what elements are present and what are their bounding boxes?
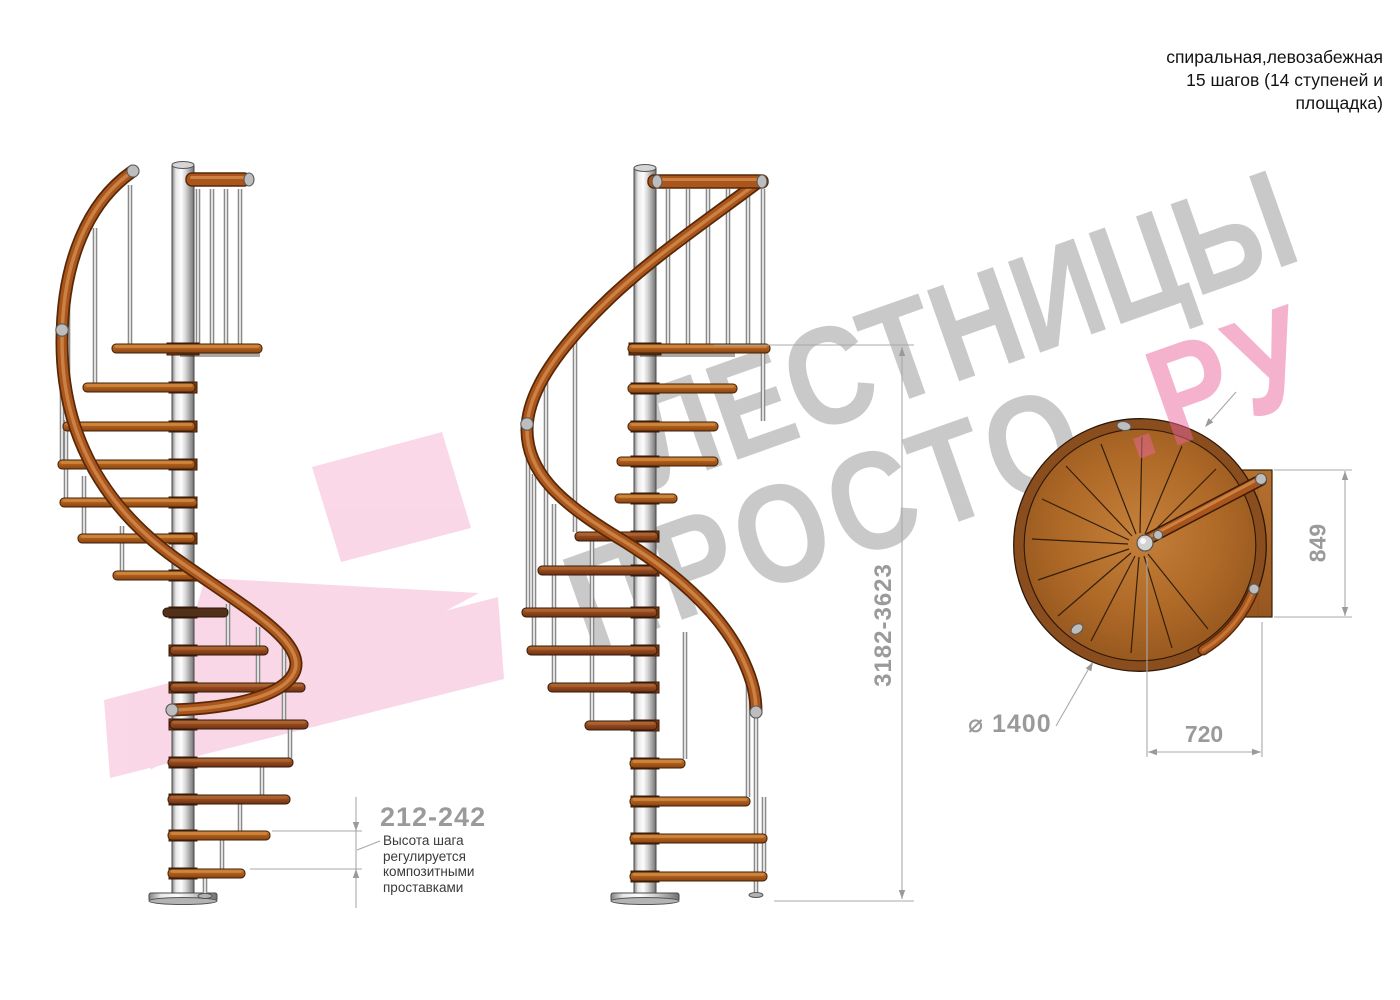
leader-diameter bbox=[1056, 662, 1093, 726]
dimension-landing-depth-value: 849 bbox=[1305, 524, 1332, 562]
step bbox=[63, 421, 197, 432]
step bbox=[628, 383, 737, 394]
step bbox=[538, 565, 659, 576]
title-line-2: 15 шагов (14 ступеней и bbox=[1166, 69, 1383, 92]
step bbox=[168, 794, 290, 805]
step bbox=[628, 421, 718, 432]
step bbox=[163, 607, 228, 618]
step bbox=[168, 757, 293, 768]
platform-handrail bbox=[186, 173, 254, 186]
step bbox=[168, 868, 245, 879]
side-view-left bbox=[56, 162, 308, 905]
step bbox=[615, 493, 677, 504]
step bbox=[527, 645, 659, 656]
title-line-1: спиральная,левозабежная bbox=[1166, 46, 1383, 69]
step bbox=[630, 833, 767, 844]
step bbox=[548, 682, 659, 693]
dimension-step-height-note: Высота шага регулируется композитными пр… bbox=[383, 833, 474, 895]
step bbox=[522, 607, 659, 618]
dimension-diameter-value: ⌀ 1400 bbox=[968, 709, 1052, 739]
pole-hub bbox=[1137, 535, 1153, 551]
step bbox=[83, 382, 197, 393]
dimension-total-height-value: 3182-3623 bbox=[870, 563, 898, 687]
step bbox=[169, 645, 268, 656]
step bbox=[630, 871, 767, 882]
drawing-canvas: ЛЕСТНИЦЫ ПРОСТО bbox=[0, 0, 1400, 1000]
step bbox=[617, 456, 718, 467]
step bbox=[58, 459, 197, 470]
step bbox=[169, 719, 308, 730]
side-view-center bbox=[521, 165, 770, 905]
step bbox=[585, 720, 659, 731]
step bbox=[60, 497, 197, 508]
dimension-step-height-value: 212-242 bbox=[380, 802, 486, 833]
drawing-title: спиральная,левозабежная 15 шагов (14 сту… bbox=[1166, 46, 1383, 115]
dimension-landing-width-value: 720 bbox=[1185, 721, 1223, 748]
title-line-3: площадка) bbox=[1166, 92, 1383, 115]
staircase-technical-drawing bbox=[0, 0, 1400, 1000]
step bbox=[630, 758, 685, 769]
dimension-step-height bbox=[250, 797, 380, 908]
platform-handrail bbox=[648, 175, 768, 188]
step bbox=[630, 796, 750, 807]
step bbox=[168, 830, 270, 841]
landing-platform bbox=[112, 343, 262, 357]
